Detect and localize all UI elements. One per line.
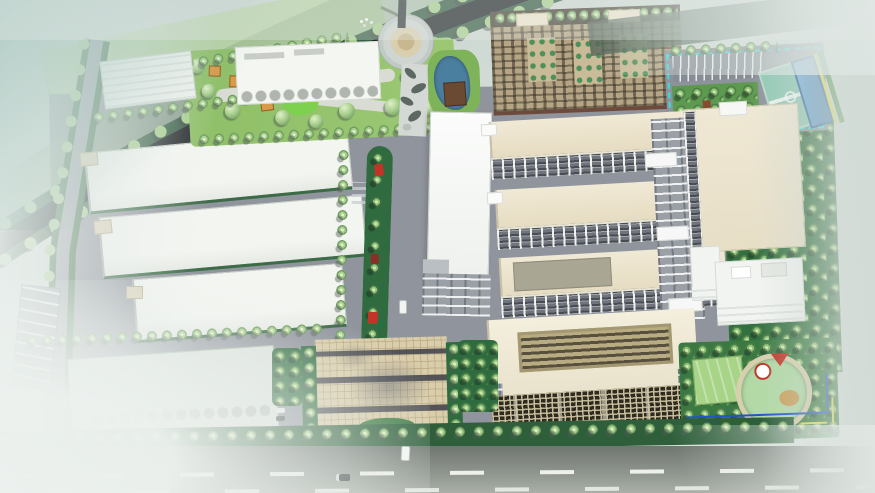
roof-cap bbox=[719, 101, 748, 117]
roof-unit bbox=[244, 52, 284, 60]
roof-box bbox=[761, 262, 788, 277]
garden-tree bbox=[275, 110, 291, 126]
parked-car bbox=[276, 408, 285, 414]
red-sculpture bbox=[368, 312, 378, 324]
avenue-crosswalk bbox=[352, 182, 367, 204]
red-canopy bbox=[771, 353, 789, 367]
entrance-east-grove bbox=[458, 340, 498, 412]
plaza-west-planter bbox=[301, 346, 318, 430]
car-on-avenue bbox=[399, 300, 407, 314]
roof-box bbox=[731, 266, 752, 279]
roof-plant-panel bbox=[513, 257, 612, 291]
red-sculpture bbox=[374, 164, 384, 177]
stepping-stone bbox=[402, 123, 411, 130]
monument-tower bbox=[398, 0, 407, 28]
north-building-east bbox=[235, 41, 381, 105]
yellow-boundary-line-h bbox=[801, 422, 827, 425]
yellow-boundary-line-v bbox=[831, 397, 834, 423]
avenue-west-trees bbox=[332, 148, 351, 344]
warehouse-3-entrance bbox=[126, 286, 143, 299]
rec-parking bbox=[672, 51, 765, 82]
dorm-roof-pad bbox=[516, 12, 548, 26]
roof-cap bbox=[487, 192, 504, 205]
connector-roof-cap bbox=[656, 225, 689, 241]
connector-roof-cap bbox=[645, 152, 678, 168]
entry-circle-plaza bbox=[378, 14, 434, 70]
car-at-gate bbox=[401, 446, 411, 461]
leaf-planter bbox=[403, 66, 418, 81]
warehouse-1-entrance bbox=[79, 151, 98, 167]
leaf-planter bbox=[406, 108, 423, 123]
pond-sand-circle bbox=[779, 390, 800, 407]
dorm-courtyard bbox=[527, 37, 557, 82]
flag-sculpture bbox=[360, 20, 363, 23]
entrance-west-grove bbox=[272, 348, 302, 406]
central-tall-building bbox=[422, 111, 496, 318]
east-hall-building bbox=[684, 103, 806, 253]
leaf-planter bbox=[399, 95, 415, 108]
southeast-white-building bbox=[690, 241, 811, 339]
warehouse-2-entrance bbox=[93, 219, 112, 235]
car-on-road bbox=[336, 474, 350, 481]
blue-boundary-line-v bbox=[825, 374, 828, 414]
pond-deck bbox=[443, 81, 467, 106]
garden-tree bbox=[339, 102, 356, 119]
roof-unit bbox=[294, 48, 324, 55]
roof-cap bbox=[481, 124, 498, 137]
pond-island-ring bbox=[754, 363, 772, 381]
parked-car bbox=[276, 416, 285, 422]
central-building-stone-base bbox=[422, 273, 491, 316]
site-plan-rendering bbox=[0, 0, 875, 493]
red-sculpture bbox=[371, 254, 379, 264]
leaf-planter bbox=[410, 81, 428, 95]
